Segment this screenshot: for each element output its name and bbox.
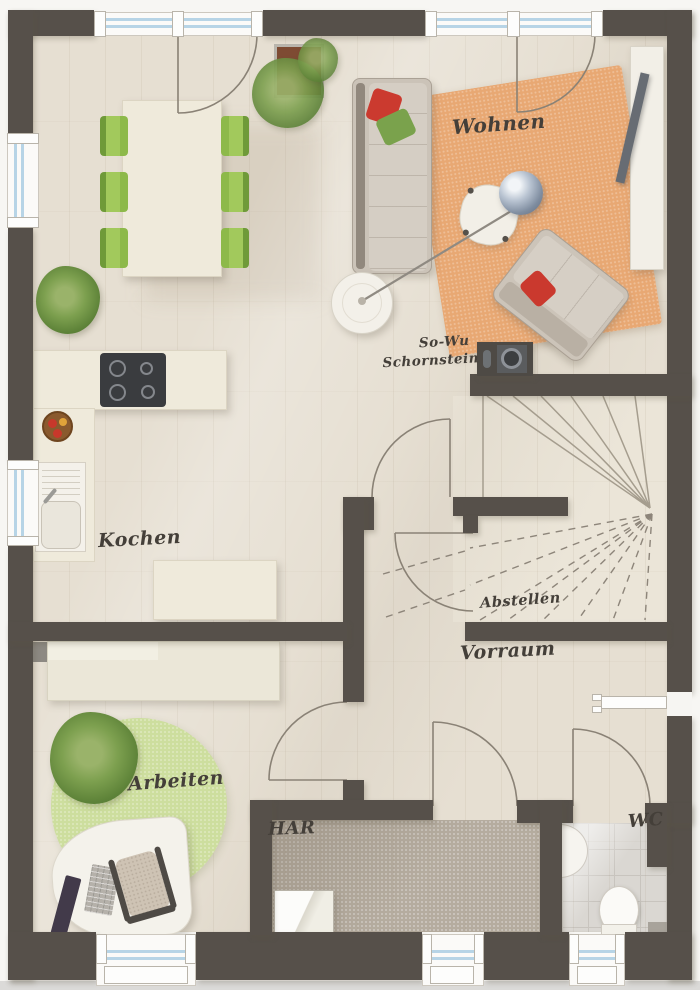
door-arc-terrace-left xyxy=(178,34,257,113)
stair-treads-solid xyxy=(483,396,650,508)
window-sill xyxy=(430,966,474,984)
linework-overlay xyxy=(0,0,700,990)
window-frame-post xyxy=(425,11,437,37)
wall-har-top xyxy=(250,800,433,820)
glazing xyxy=(106,950,186,953)
window-frame-post xyxy=(507,11,520,37)
chimney-vent-slot xyxy=(483,350,491,368)
door-arc-har xyxy=(433,722,517,806)
chimney-label: So-Wu Schornstein xyxy=(381,332,471,373)
wall-abstellen-stub xyxy=(463,516,478,533)
wall-kitchen-office xyxy=(8,622,347,641)
window-frame-post xyxy=(591,11,603,37)
glazing xyxy=(14,469,17,538)
glazing xyxy=(577,950,617,953)
window-frame-post xyxy=(7,217,39,228)
chimney-label-line2: Schornstein xyxy=(382,350,479,371)
floor-lamp-base xyxy=(358,297,366,305)
glazing xyxy=(21,142,24,220)
window-frame-post xyxy=(569,934,579,964)
wall-living-stairs xyxy=(470,374,692,396)
wall-divider-vertical xyxy=(343,497,364,702)
floor-lamp-shade xyxy=(499,171,543,215)
window-frame-post xyxy=(7,536,39,546)
wall-left-lower xyxy=(8,546,33,980)
window-frame-post xyxy=(172,11,184,37)
door-arc-terrace-right xyxy=(517,34,595,112)
window-frame-post xyxy=(94,11,106,37)
window-sill xyxy=(104,966,188,984)
window-frame-post xyxy=(615,934,625,964)
wall-right-upper xyxy=(667,10,692,692)
window-frame-post xyxy=(474,934,484,964)
floor-plan: Wohnen So-Wu Schornstein Kochen Abstelle… xyxy=(0,0,700,990)
wall-top-middle xyxy=(263,10,425,36)
window-frame-post xyxy=(7,460,39,470)
wall-left-middle xyxy=(8,228,33,460)
door-arc-abstellen xyxy=(395,533,473,611)
room-label-wc: WC xyxy=(627,809,664,832)
chimney-block xyxy=(477,342,533,376)
wall-bottom-4 xyxy=(625,932,692,980)
door-arc-wc xyxy=(573,729,650,806)
window-sill xyxy=(577,966,617,984)
window-frame-post xyxy=(7,133,39,144)
chimney-label-line1: So-Wu xyxy=(419,333,470,352)
chimney-flue xyxy=(501,348,522,369)
entrance-door-frame xyxy=(592,706,602,713)
entrance-opening xyxy=(667,692,692,716)
glazing xyxy=(14,142,17,220)
entrance-door-frame xyxy=(592,694,602,701)
wall-bottom-3 xyxy=(484,932,569,980)
entrance-door-leaf xyxy=(601,696,667,709)
glazing xyxy=(21,469,24,538)
wall-divider-lower-stub xyxy=(343,780,364,802)
wall-abstellen-top xyxy=(453,497,568,516)
window-frame-post xyxy=(422,934,432,964)
glazing xyxy=(106,957,186,960)
wall-abstellen-bottom xyxy=(465,622,667,641)
wall-wc-left xyxy=(540,800,562,935)
glazing xyxy=(430,957,476,960)
room-label-har: HAR xyxy=(268,817,316,840)
window-frame-post xyxy=(96,934,107,964)
glazing xyxy=(577,957,617,960)
wall-bottom-1 xyxy=(8,932,96,980)
door-arc-hall xyxy=(372,419,450,497)
window-frame-post xyxy=(251,11,263,37)
window-frame-post xyxy=(185,934,196,964)
wall-left-upper xyxy=(8,10,33,133)
door-arc-arbeiten xyxy=(269,702,347,780)
room-label-kochen: Kochen xyxy=(97,526,181,552)
glazing xyxy=(430,950,476,953)
wall-bottom-2 xyxy=(196,932,422,980)
